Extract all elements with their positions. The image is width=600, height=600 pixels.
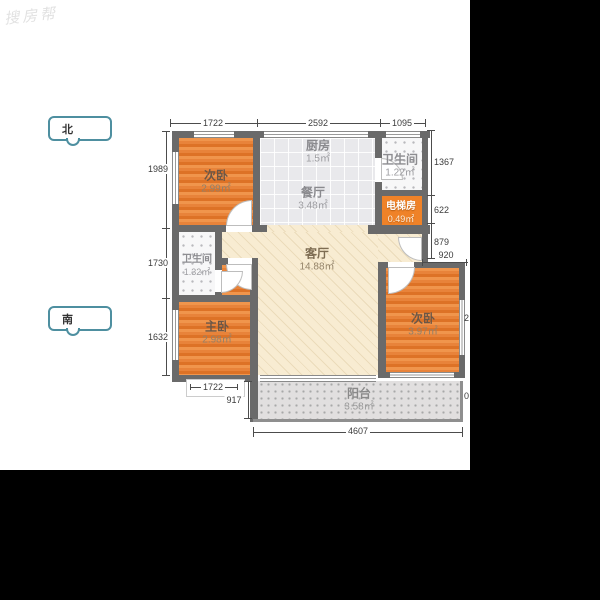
floor-living-opening (262, 225, 375, 232)
window (172, 152, 179, 204)
wall (378, 262, 386, 378)
dim-bottom-1722: 1722 (201, 382, 225, 392)
wall (253, 225, 267, 232)
window (390, 372, 454, 378)
dim-top-2592: 2592 (306, 118, 330, 128)
room-name: 次卧 (408, 311, 437, 326)
window (194, 131, 234, 138)
dim-917: 917 (224, 395, 243, 405)
room-area: 3.48㎡ (298, 200, 327, 213)
compass-north-box: 北 (48, 116, 112, 141)
dim-tick (162, 228, 170, 229)
dim-tick (162, 298, 170, 299)
room-label-living: 客厅 14.88㎡ (299, 246, 334, 274)
wall (172, 295, 255, 302)
window (172, 310, 179, 360)
dim-left-1632: 1632 (146, 332, 170, 342)
dim-tick (462, 427, 463, 437)
dim-fragment-right-mid: 2 (464, 313, 469, 323)
dim-tick (237, 384, 238, 390)
room-area: 3.97㎡ (408, 326, 437, 339)
room-label-bedroom-right: 次卧 3.97㎡ (408, 311, 437, 339)
room-area: 1.5㎡ (306, 153, 330, 166)
dim-right-622: 622 (434, 205, 449, 215)
room-name: 卫生间 (382, 152, 418, 167)
dim-tick (244, 381, 252, 382)
room-name: 客厅 (299, 246, 334, 261)
room-name: 电梯房 (386, 201, 416, 214)
room-name: 卫生间 (182, 254, 212, 267)
compass-south-box: 南 (48, 306, 112, 331)
wall (368, 225, 430, 234)
window (459, 300, 465, 355)
dim-tick (257, 119, 258, 127)
wall (378, 190, 428, 196)
dim-tick (425, 119, 426, 127)
watermark: 搜房帮 (3, 2, 59, 29)
dim-right-879: 879 (434, 237, 449, 247)
room-label-elevator: 电梯房 0.49㎡ (386, 201, 416, 225)
compass-south-notch (66, 328, 80, 336)
dim-top-1722: 1722 (201, 118, 225, 128)
dim-fragment-right-low: 0 (464, 391, 469, 401)
room-name: 阳台 (344, 386, 373, 401)
floor-plan-image: 搜房帮 北 南 (0, 0, 600, 600)
window (386, 131, 420, 138)
room-label-balcony: 阳台 3.58㎡ (344, 386, 373, 414)
compass-north-label: 北 (62, 121, 73, 137)
dim-tick (427, 195, 435, 196)
dim-left-1730: 1730 (146, 258, 170, 268)
dim-tick (427, 130, 435, 131)
room-name: 次卧 (201, 168, 230, 183)
room-area: 2.99㎡ (201, 183, 230, 196)
compass-south-label: 南 (62, 311, 73, 327)
dim-top-1095: 1095 (390, 118, 414, 128)
dim-tick (466, 259, 467, 266)
room-label-bath-top: 卫生间 1.22㎡ (382, 152, 418, 180)
room-area: 1.32㎡ (182, 267, 212, 278)
compass-north-notch (66, 138, 80, 146)
wall (250, 378, 258, 422)
dim-right-1367: 1367 (434, 157, 454, 167)
room-label-master: 主卧 2.98㎡ (202, 319, 231, 347)
room-name: 主卧 (202, 319, 231, 334)
dim-tick (380, 119, 381, 127)
wall (253, 131, 260, 232)
wall (422, 131, 428, 232)
room-label-bath-left: 卫生间 1.32㎡ (182, 254, 212, 278)
dim-tick (170, 119, 171, 127)
room-area: 14.88㎡ (299, 261, 334, 274)
dim-tick (427, 258, 435, 259)
dim-920: 920 (436, 250, 455, 260)
dim-line-920 (422, 262, 468, 263)
room-label-bedroom-top: 次卧 2.99㎡ (201, 168, 230, 196)
dim-tick (162, 375, 170, 376)
room-area: 3.58㎡ (344, 401, 373, 414)
door-gap (226, 225, 252, 232)
room-name: 餐厅 (298, 185, 327, 200)
room-area: 1.22㎡ (382, 167, 418, 180)
dim-tick (244, 418, 252, 419)
room-label-kitchen: 厨房 1.5㎡ (306, 138, 330, 166)
dim-tick (162, 131, 170, 132)
balcony-rail (253, 419, 463, 422)
dim-left-1989: 1989 (146, 164, 170, 174)
room-area: 2.98㎡ (202, 334, 231, 347)
room-area: 0.49㎡ (386, 214, 416, 225)
dim-4607: 4607 (346, 426, 370, 436)
window (264, 131, 368, 138)
dim-tick (427, 223, 435, 224)
window-balcony-slider (260, 375, 376, 382)
room-label-dining: 餐厅 3.48㎡ (298, 185, 327, 213)
dim-tick (190, 384, 191, 390)
room-name: 厨房 (306, 138, 330, 153)
dim-line-917 (248, 381, 249, 419)
floor-plan-content: 搜房帮 北 南 (0, 0, 470, 470)
dim-line-right (431, 130, 432, 258)
dim-tick (422, 259, 423, 266)
dim-tick (253, 427, 254, 437)
balcony-rail (460, 381, 463, 422)
